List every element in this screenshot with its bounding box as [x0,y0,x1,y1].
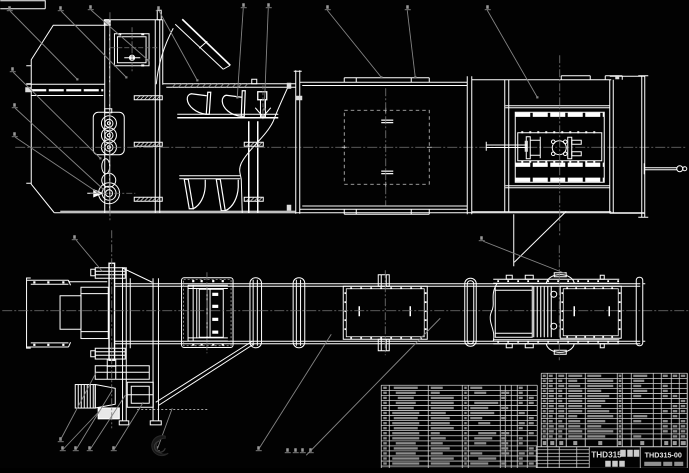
svg-text:THD315-00: THD315-00 [645,450,682,459]
svg-text:THD315: THD315 [591,450,622,459]
